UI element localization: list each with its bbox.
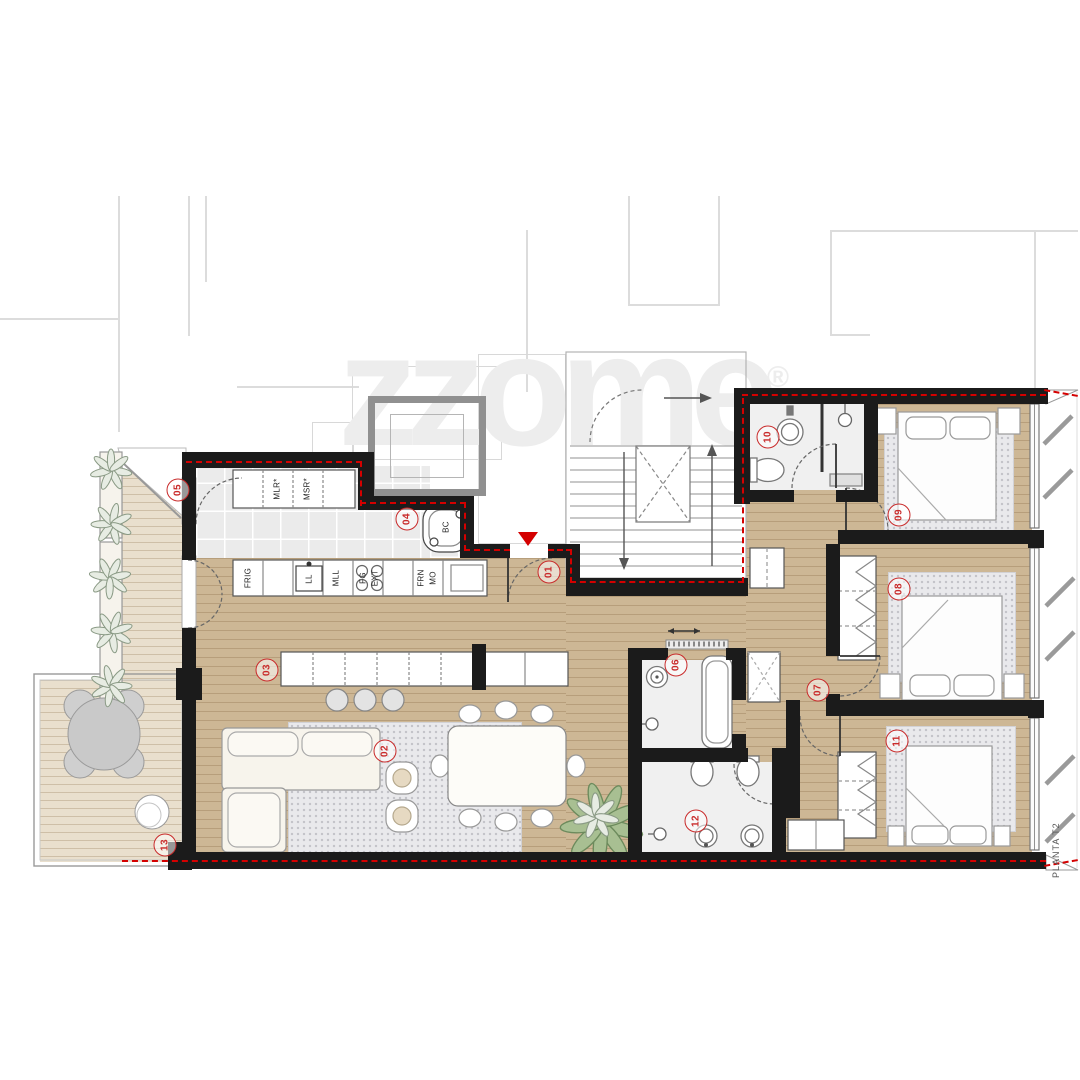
dining-table-set xyxy=(431,701,585,831)
kitchen-island xyxy=(281,652,568,711)
bed-08 xyxy=(880,596,1024,700)
appliance-label-frn: FRN xyxy=(417,569,426,586)
wall xyxy=(182,452,196,560)
room-marker-06: 06 xyxy=(665,654,688,677)
wall xyxy=(628,748,748,762)
room-marker-03: 03 xyxy=(256,659,279,682)
windows xyxy=(1030,390,1078,870)
wall xyxy=(460,544,510,558)
room-marker-label: 07 xyxy=(813,684,824,696)
wall xyxy=(1028,700,1044,718)
bar-stool xyxy=(354,689,376,711)
wall xyxy=(864,404,878,502)
boundary-dash xyxy=(742,394,1046,396)
bathroom-06-fixtures xyxy=(642,656,732,748)
toilet xyxy=(691,758,713,786)
room-marker-13: 13 xyxy=(154,834,177,857)
bed-11 xyxy=(888,746,1010,846)
room-marker-10: 10 xyxy=(757,426,780,449)
open-window-leaves xyxy=(1044,416,1074,842)
wall xyxy=(826,544,840,656)
room-marker-12: 12 xyxy=(685,810,708,833)
room-marker-label: 12 xyxy=(691,815,702,827)
room-marker-label: 13 xyxy=(160,839,171,851)
room-marker-07: 07 xyxy=(807,679,830,702)
room-marker-label: 11 xyxy=(892,735,903,746)
boundary-dash xyxy=(186,461,362,463)
appliance-label-ext: EXT xyxy=(371,570,380,586)
room-marker-04: 04 xyxy=(396,508,419,531)
shower-head xyxy=(654,828,666,840)
room-marker-label: 10 xyxy=(763,431,774,443)
room-marker-09: 09 xyxy=(888,504,911,527)
shower-bench xyxy=(830,474,862,486)
room-marker-label: 03 xyxy=(262,664,273,676)
room-marker-11: 11 xyxy=(886,730,909,753)
bar-stool xyxy=(382,689,404,711)
wall xyxy=(176,668,202,700)
wall xyxy=(786,700,800,818)
boundary-dash xyxy=(122,860,1046,862)
hall-closet xyxy=(750,548,784,588)
plan-type-label: PLANTA T2 xyxy=(1051,822,1061,878)
appliance-label-bc: BC xyxy=(442,521,451,533)
floor-plan: zzome® xyxy=(0,0,1080,1080)
wall xyxy=(772,748,786,852)
terrace-furniture xyxy=(64,690,169,829)
bathroom-12-fixtures xyxy=(648,756,763,847)
wall xyxy=(472,644,486,690)
dining-table xyxy=(448,726,566,806)
room-marker-label: 08 xyxy=(894,583,905,595)
wall xyxy=(1028,530,1044,548)
appliance-label-fg: FG xyxy=(359,572,368,584)
entrance-marker-triangle xyxy=(518,532,538,546)
shower-head xyxy=(839,414,852,427)
appliance-label-mll: MLL xyxy=(332,570,341,586)
boundary-dash xyxy=(464,502,466,551)
appliance-label-msr: MSR* xyxy=(303,478,312,500)
room-marker-01: 01 xyxy=(538,561,561,584)
boundary-dash xyxy=(570,549,572,583)
appliance-label-mlr: MLR* xyxy=(273,478,282,499)
terrace-pot xyxy=(135,795,169,829)
staircase xyxy=(566,352,746,578)
shower-head xyxy=(646,718,658,730)
boundary-dash xyxy=(742,398,744,583)
bar-stool xyxy=(326,689,348,711)
room-marker-label: 05 xyxy=(173,484,184,496)
room-marker-02: 02 xyxy=(374,740,397,763)
appliance-label-mo: MO xyxy=(429,571,438,585)
room-marker-05: 05 xyxy=(167,479,190,502)
boundary-dash xyxy=(548,549,572,551)
boundary-dash xyxy=(570,581,744,583)
wall xyxy=(732,648,746,700)
appliance-label-ll: LL xyxy=(305,574,314,584)
wall xyxy=(734,388,1048,404)
room-marker-label: 04 xyxy=(402,513,413,525)
terrace-table xyxy=(68,698,140,770)
wall xyxy=(182,698,196,854)
wall xyxy=(838,530,1044,544)
wall xyxy=(826,694,840,716)
wall xyxy=(628,648,642,760)
wall xyxy=(182,452,374,468)
boundary-dash xyxy=(464,549,510,551)
room-marker-label: 06 xyxy=(671,659,682,671)
room-marker-label: 02 xyxy=(380,745,391,757)
wall xyxy=(628,748,642,864)
room-marker-label: 09 xyxy=(894,509,905,521)
wall xyxy=(840,700,1044,716)
boundary-dash xyxy=(360,461,362,506)
appliance-label-frig: FRIG xyxy=(244,568,253,588)
room-marker-label: 01 xyxy=(544,566,555,578)
boundary-dash xyxy=(360,502,466,504)
bidet xyxy=(737,758,759,786)
room-marker-08: 08 xyxy=(888,578,911,601)
